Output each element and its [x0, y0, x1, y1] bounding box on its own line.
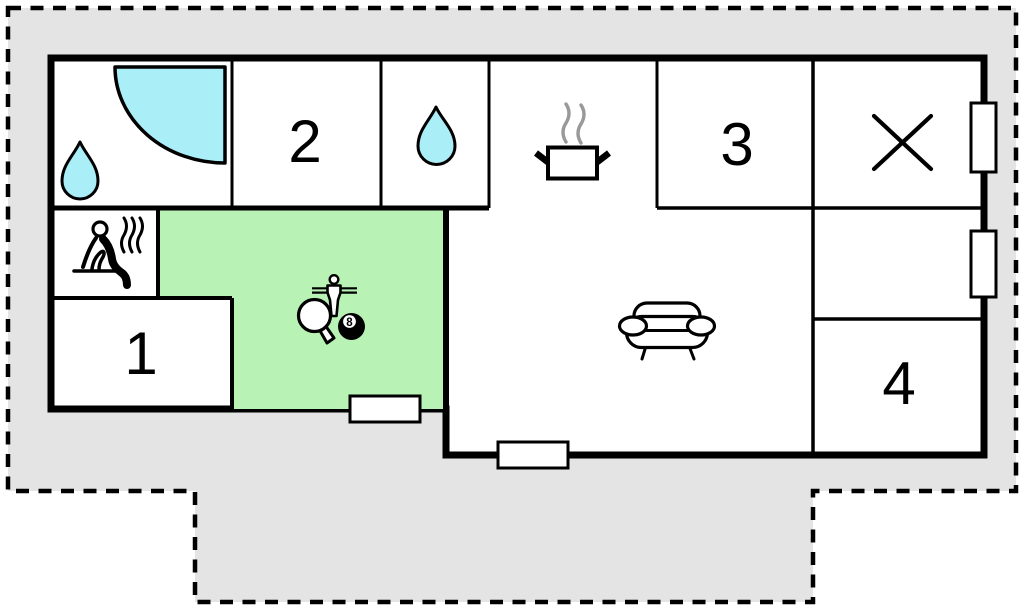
- door-opening-living-room: [498, 442, 568, 468]
- room-4-label: 4: [882, 350, 915, 417]
- sofa-armrest: [688, 317, 715, 335]
- foosball-player-head: [330, 275, 339, 284]
- window-right-middle: [971, 231, 996, 297]
- eight-ball-icon: 8: [338, 313, 365, 340]
- room-2-label: 2: [288, 108, 321, 175]
- floor-plan-svg: 8 1 2 3 4: [0, 0, 1024, 608]
- eight-ball-number: 8: [346, 317, 353, 329]
- door-opening-game-room: [350, 396, 420, 422]
- room-1-label: 1: [124, 320, 157, 387]
- floor-plan-page: 8 1 2 3 4: [0, 0, 1024, 608]
- pot-body: [548, 148, 597, 179]
- paddle-blade: [299, 300, 331, 332]
- room-3-label: 3: [720, 111, 753, 178]
- sofa-armrest: [620, 317, 647, 335]
- window-right-top: [971, 103, 996, 172]
- sauna-person-head: [93, 222, 107, 236]
